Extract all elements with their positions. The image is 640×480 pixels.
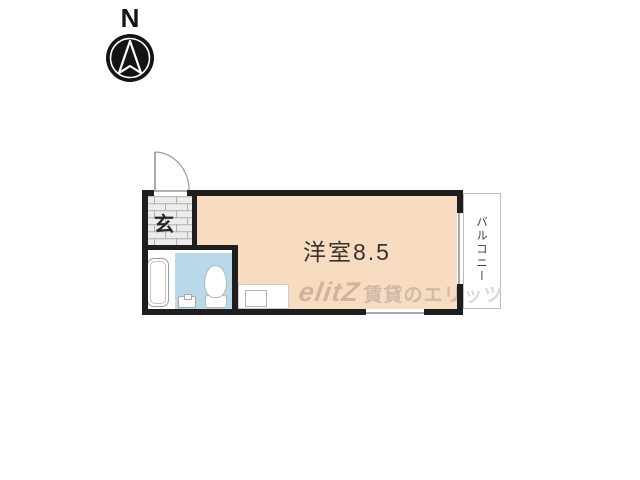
toilet bbox=[204, 265, 227, 298]
kitchen-counter bbox=[238, 284, 289, 309]
wall-top bbox=[187, 190, 463, 196]
bathtub-inner-line bbox=[150, 261, 166, 304]
north-label: N bbox=[116, 3, 144, 34]
wall-right-top bbox=[457, 190, 463, 213]
balcony-label: バルコニー bbox=[473, 216, 489, 284]
bathtub bbox=[147, 258, 169, 307]
kitchen-sink bbox=[245, 290, 267, 307]
balcony-window bbox=[458, 213, 460, 284]
window-bottom-wall bbox=[366, 312, 424, 314]
floor-plan-page: N elitZ 賃貸のエリ ッツ bbox=[0, 0, 640, 480]
watermark-text: 賃貸のエリ bbox=[364, 280, 464, 307]
wall-right-bottom bbox=[457, 284, 463, 315]
main-room-label: 洋室8.5 bbox=[303, 233, 391, 267]
wall-bottom-left bbox=[142, 309, 366, 315]
wall-entrance-right bbox=[192, 190, 197, 250]
wall-left bbox=[142, 190, 148, 315]
faucet bbox=[184, 294, 192, 300]
north-arrow-icon bbox=[104, 32, 156, 84]
wall-bathroom-top bbox=[142, 245, 238, 250]
entrance-door-arc-icon bbox=[153, 151, 190, 192]
watermark-text-tail: ッツ bbox=[464, 280, 504, 307]
wash-basin bbox=[178, 296, 196, 308]
wall-bathroom-right bbox=[232, 245, 238, 315]
entrance-label: 玄 bbox=[154, 208, 174, 237]
watermark-logo: elitZ bbox=[297, 277, 362, 308]
